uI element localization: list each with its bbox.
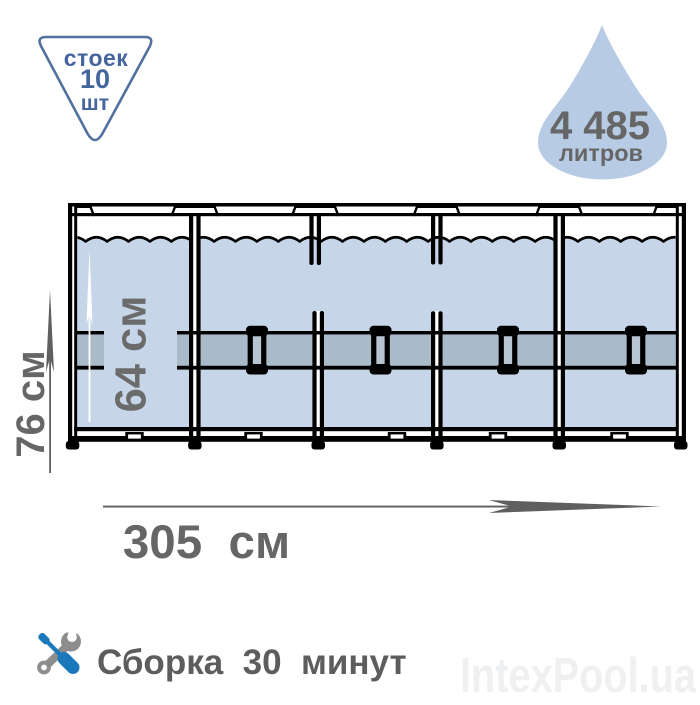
svg-text:Сборка 30 минут: Сборка 30 минут	[97, 643, 407, 682]
svg-text:литров: литров	[559, 140, 643, 166]
svg-text:76 см: 76 см	[9, 350, 53, 457]
svg-text:64 см: 64 см	[108, 296, 156, 413]
svg-text:IntexPool.ua: IntexPool.ua	[460, 649, 697, 700]
svg-text:шт: шт	[81, 91, 109, 115]
svg-text:305 см: 305 см	[123, 516, 290, 569]
svg-text:10: 10	[80, 64, 110, 94]
